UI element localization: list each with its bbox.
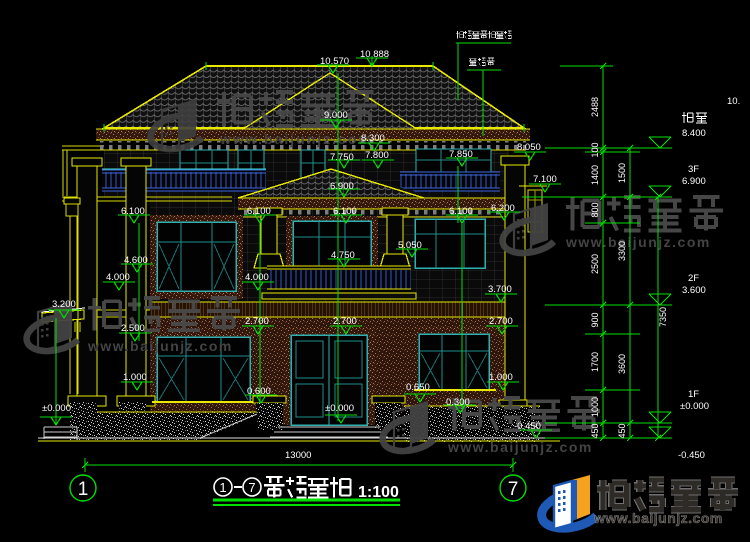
svg-text:0.650: 0.650 <box>406 382 430 393</box>
svg-text:100: 100 <box>590 142 600 157</box>
svg-text:www.baijunjz.com: www.baijunjz.com <box>447 439 593 455</box>
svg-text:www.baijunjz.com: www.baijunjz.com <box>593 510 723 526</box>
svg-text:7: 7 <box>248 480 255 495</box>
svg-text:10.888: 10.888 <box>360 49 389 60</box>
svg-text:450: 450 <box>617 423 627 438</box>
svg-text:1:100: 1:100 <box>358 484 399 501</box>
svg-text:±0.000: ±0.000 <box>325 403 354 414</box>
svg-text:6.100: 6.100 <box>121 206 145 217</box>
svg-text:1500: 1500 <box>617 163 627 183</box>
svg-text:8.050: 8.050 <box>517 142 541 153</box>
svg-text:10.570: 10.570 <box>320 56 349 67</box>
svg-text:1700: 1700 <box>590 352 600 372</box>
svg-text:6.900: 6.900 <box>330 181 354 192</box>
svg-text:13000: 13000 <box>285 450 311 461</box>
svg-text:3.700: 3.700 <box>488 284 512 295</box>
svg-text:1F: 1F <box>688 389 699 400</box>
svg-text:4.750: 4.750 <box>331 250 355 261</box>
svg-text:±0.000: ±0.000 <box>680 401 709 412</box>
svg-text:7.750: 7.750 <box>330 152 354 163</box>
svg-text:2.700: 2.700 <box>489 316 513 327</box>
svg-text:4.000: 4.000 <box>245 272 269 283</box>
svg-text:3300: 3300 <box>617 241 627 261</box>
svg-text:4.000: 4.000 <box>106 272 130 283</box>
svg-text:6.200: 6.200 <box>491 203 515 214</box>
svg-text:900: 900 <box>590 312 600 327</box>
svg-text:7.850: 7.850 <box>449 149 473 160</box>
svg-text:1: 1 <box>78 479 89 500</box>
svg-text:2.700: 2.700 <box>245 316 269 327</box>
svg-text:www.baijunjz.com: www.baijunjz.com <box>565 234 711 250</box>
svg-text:3.600: 3.600 <box>682 285 706 296</box>
svg-text:1400: 1400 <box>590 165 600 185</box>
svg-text:1.000: 1.000 <box>489 372 513 383</box>
svg-text:10.: 10. <box>727 96 740 107</box>
svg-text:8.400: 8.400 <box>682 128 706 139</box>
svg-text:1: 1 <box>219 480 226 495</box>
svg-text:0.300: 0.300 <box>446 397 470 408</box>
svg-text:2.700: 2.700 <box>333 316 357 327</box>
svg-text:3F: 3F <box>688 164 699 175</box>
svg-text:800: 800 <box>590 202 600 217</box>
svg-text:1.000: 1.000 <box>123 372 147 383</box>
svg-text:7.800: 7.800 <box>365 150 389 161</box>
svg-text:6.100: 6.100 <box>333 206 357 217</box>
svg-text:6.100: 6.100 <box>247 206 271 217</box>
svg-text:2F: 2F <box>688 273 699 284</box>
svg-text:2.500: 2.500 <box>121 323 145 334</box>
svg-text:6.900: 6.900 <box>682 176 706 187</box>
svg-text:-0.450: -0.450 <box>514 421 541 432</box>
svg-text:3.200: 3.200 <box>52 299 76 310</box>
svg-text:2500: 2500 <box>590 254 600 274</box>
svg-text:-0.450: -0.450 <box>678 450 705 461</box>
svg-text:9.000: 9.000 <box>324 110 348 121</box>
svg-text:0.600: 0.600 <box>247 386 271 397</box>
svg-text:1000: 1000 <box>590 397 600 417</box>
svg-text:7.100: 7.100 <box>533 174 557 185</box>
svg-text:6.100: 6.100 <box>449 206 473 217</box>
svg-text:7350: 7350 <box>658 307 668 327</box>
svg-text:www.baijunjz.com: www.baijunjz.com <box>87 338 233 354</box>
svg-text:7: 7 <box>508 479 519 500</box>
svg-text:www.baijunjz.com: www.baijunjz.com <box>219 131 373 147</box>
svg-text:4.600: 4.600 <box>124 255 148 266</box>
svg-text:450: 450 <box>590 423 600 438</box>
svg-text:8.300: 8.300 <box>361 133 385 144</box>
svg-text:3600: 3600 <box>617 354 627 374</box>
svg-text:5.050: 5.050 <box>398 240 422 251</box>
svg-text:2488: 2488 <box>590 97 600 117</box>
svg-text:±0.000: ±0.000 <box>42 403 71 414</box>
